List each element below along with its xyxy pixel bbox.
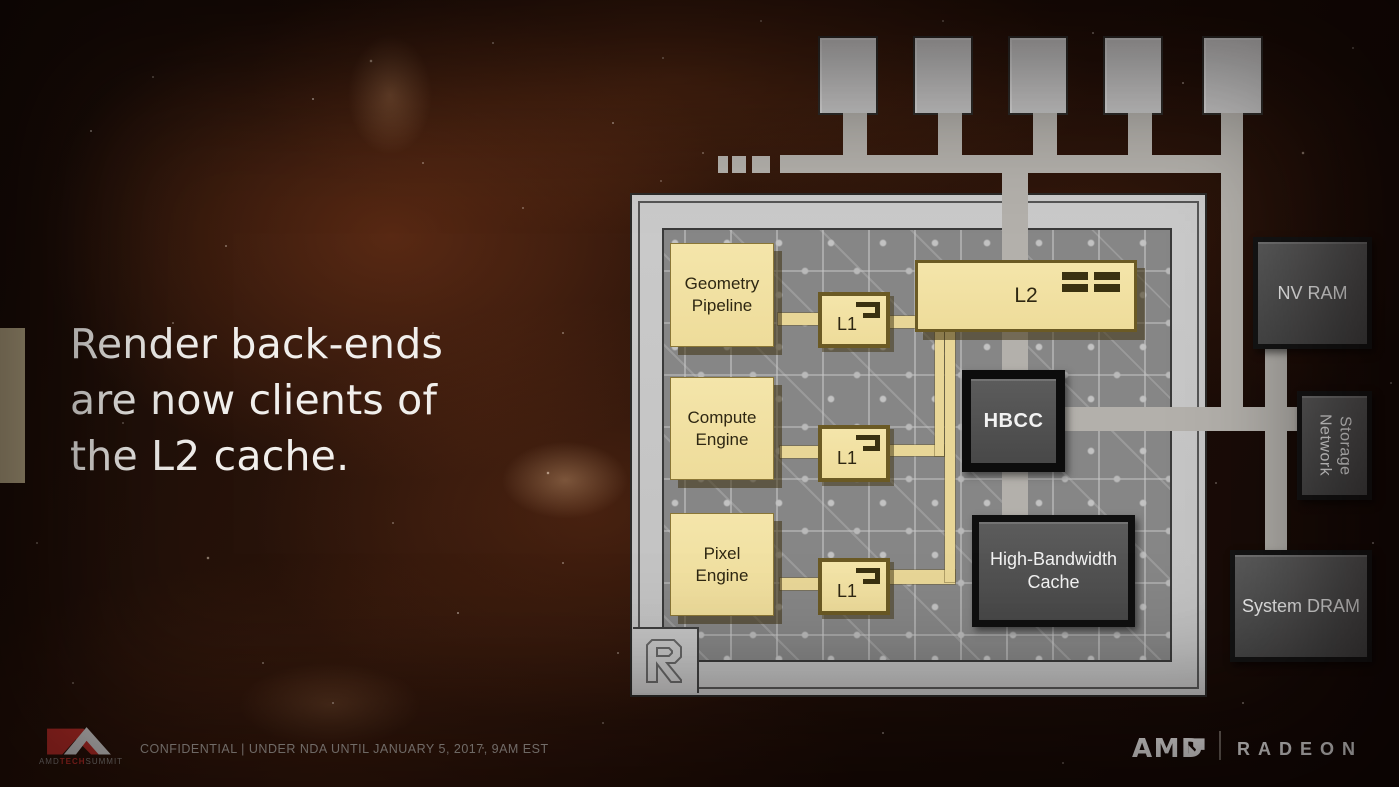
block-label: NV RAM: [1277, 282, 1347, 305]
io-pad-stem-3: [1033, 113, 1057, 157]
trace-compute-l1-to-l2-vertical: [935, 330, 944, 456]
io-pad-4: [1103, 36, 1163, 115]
amd-tech-summit-logo: [44, 724, 120, 756]
io-pad-2: [913, 36, 973, 115]
slide: Render back-ends are now clients of the …: [0, 0, 1399, 787]
hbcc-to-storage-line: [1065, 407, 1297, 431]
block-l1-pixel: L1: [818, 558, 890, 615]
io-pad-stem-2: [938, 113, 962, 157]
block-l2-cache: L2: [915, 260, 1137, 332]
io-pad-stem-1: [843, 113, 867, 157]
star-field: [0, 0, 2, 2]
summit-tech-text: TECH: [60, 757, 86, 766]
block-pixel-engine: Pixel Engine: [670, 513, 774, 616]
cache-lines-icon: [1062, 272, 1120, 292]
block-label: Storage: [1335, 414, 1355, 476]
block-label: Pipeline: [692, 295, 753, 317]
io-pad-1: [818, 36, 878, 115]
confidential-notice: CONFIDENTIAL | UNDER NDA UNTIL JANUARY 5…: [140, 742, 549, 756]
block-system-dram: System DRAM: [1230, 550, 1372, 662]
radeon-wordmark: RADEON: [1237, 739, 1363, 760]
headline-line: the L2 cache.: [70, 428, 443, 484]
rotated-label: Network Storage: [1315, 414, 1355, 476]
block-label: Engine: [696, 565, 749, 587]
block-label: System DRAM: [1242, 595, 1360, 618]
brand-divider: [1219, 731, 1221, 760]
amd-tech-summit-wordmark: AMDTECHSUMMIT: [28, 757, 134, 766]
block-label: High-Bandwidth: [990, 548, 1117, 571]
block-label: Geometry: [685, 273, 760, 295]
block-label: L1: [837, 447, 857, 469]
block-geometry-pipeline: Geometry Pipeline: [670, 243, 774, 347]
headline-line: are now clients of: [70, 372, 443, 428]
nvram-dram-link: [1265, 347, 1287, 552]
block-nv-ram: NV RAM: [1253, 237, 1372, 349]
monogram-plate: [633, 627, 699, 693]
summit-amd-text: AMD: [39, 757, 60, 766]
trace-geometry-to-l1: [778, 313, 820, 325]
io-pad-stem-4: [1128, 113, 1152, 157]
cache-line-icon: [856, 568, 880, 584]
amd-arrow-icon: [1187, 737, 1206, 756]
bus-dash-1: [718, 156, 728, 173]
accent-bar: [0, 328, 25, 483]
block-label: Engine: [696, 429, 749, 451]
io-pad-5: [1202, 36, 1263, 115]
block-compute-engine: Compute Engine: [670, 377, 774, 480]
block-high-bandwidth-cache: High-Bandwidth Cache: [972, 515, 1135, 627]
block-label: Cache: [1027, 571, 1079, 594]
io-pad-3: [1008, 36, 1068, 115]
trace-pixel-l1-to-l2-vertical: [945, 330, 955, 582]
block-label: L2: [1014, 285, 1037, 307]
block-label: L1: [837, 580, 857, 602]
trace-l1-to-l2: [886, 316, 917, 328]
block-label: HBCC: [984, 410, 1044, 433]
hbcc-to-hbc-link: [1002, 470, 1028, 517]
headline-line: Render back-ends: [70, 316, 443, 372]
block-label: L1: [837, 313, 857, 335]
radeon-monogram: [644, 637, 684, 685]
trace-pixel-to-l1: [780, 578, 820, 590]
block-l1-geometry: L1: [818, 292, 890, 348]
cache-line-icon: [856, 302, 880, 318]
bus-dash-2: [732, 156, 746, 173]
block-label: Pixel: [704, 543, 741, 565]
block-label: Compute: [688, 407, 757, 429]
block-l1-compute: L1: [818, 425, 890, 482]
bus-dash-3: [752, 156, 770, 173]
block-label: Network: [1315, 414, 1335, 476]
headline: Render back-ends are now clients of the …: [70, 316, 443, 484]
summit-summit-text: SUMMIT: [86, 757, 124, 766]
cache-line-icon: [856, 435, 880, 451]
trace-compute-to-l1: [780, 446, 820, 458]
block-network-storage: Network Storage: [1297, 391, 1372, 500]
block-hbcc: HBCC: [962, 370, 1065, 472]
